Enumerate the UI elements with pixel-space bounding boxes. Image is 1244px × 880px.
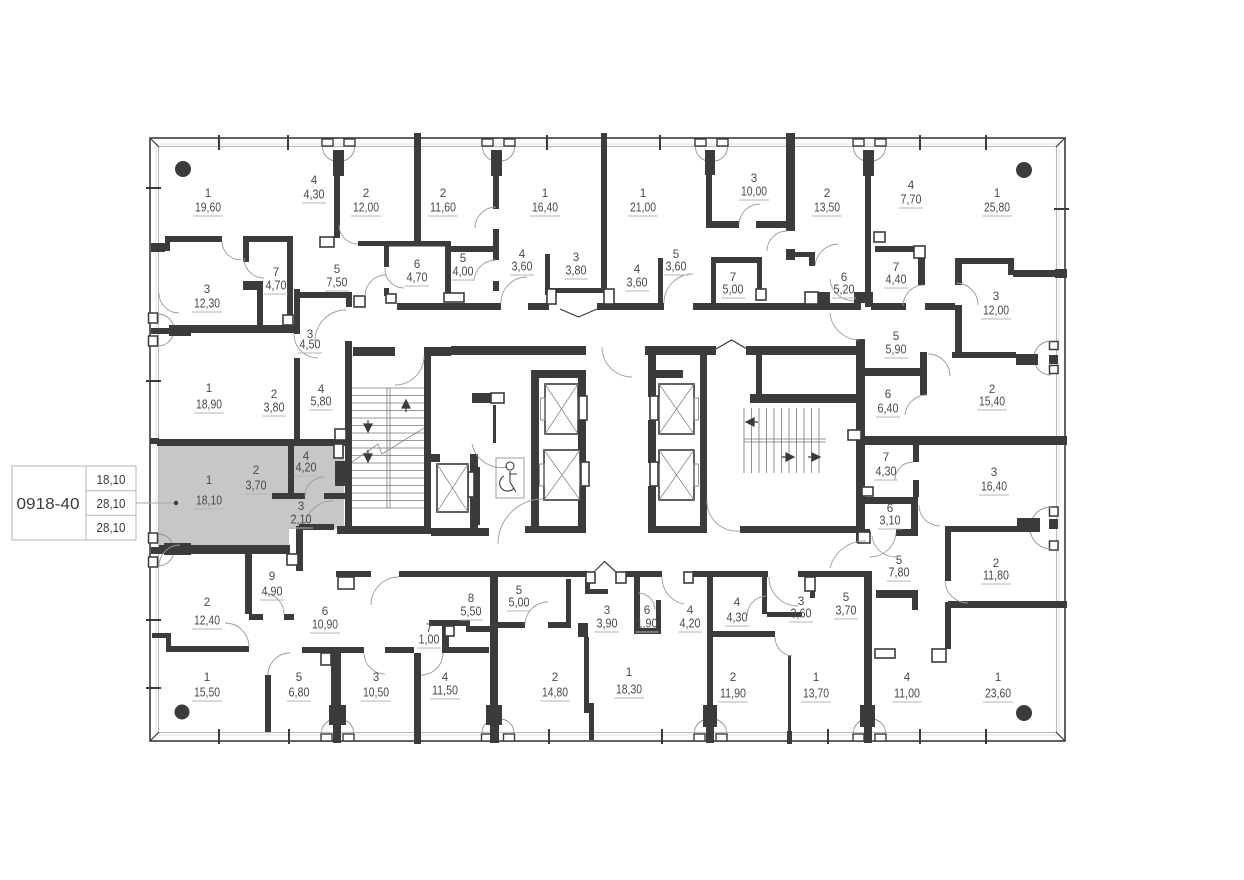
svg-text:18,10: 18,10 [97,473,126,487]
svg-text:18,30: 18,30 [616,683,642,697]
svg-text:3: 3 [993,291,1000,303]
svg-text:0918-40: 0918-40 [17,496,80,513]
svg-text:25,80: 25,80 [984,201,1010,215]
svg-text:5: 5 [296,672,303,684]
svg-text:3,60: 3,60 [666,260,687,274]
svg-text:18,10: 18,10 [196,494,222,508]
svg-text:5,50: 5,50 [461,605,482,619]
svg-text:2: 2 [552,672,559,684]
svg-text:3: 3 [573,252,580,264]
svg-text:4: 4 [908,180,915,192]
svg-text:3,80: 3,80 [566,264,587,278]
svg-text:1: 1 [542,188,549,200]
svg-text:4,20: 4,20 [296,461,317,475]
svg-text:1: 1 [626,667,633,679]
svg-text:5,00: 5,00 [509,596,530,610]
svg-text:15,40: 15,40 [979,395,1005,409]
svg-text:5,20: 5,20 [834,283,855,297]
svg-text:7,80: 7,80 [889,566,910,580]
svg-text:6,80: 6,80 [289,686,310,700]
svg-text:13,50: 13,50 [814,201,840,215]
svg-text:4,40: 4,40 [886,273,907,287]
svg-text:11,60: 11,60 [430,201,456,215]
svg-text:9: 9 [269,571,276,583]
svg-text:11,00: 11,00 [894,687,920,701]
svg-text:11,50: 11,50 [432,684,458,698]
svg-text:21,00: 21,00 [630,201,656,215]
svg-text:1,90: 1,90 [637,617,658,631]
svg-text:18,90: 18,90 [196,398,222,412]
svg-text:16,40: 16,40 [532,201,558,215]
svg-text:12,00: 12,00 [983,304,1009,318]
svg-text:2: 2 [440,188,447,200]
svg-text:4,00: 4,00 [453,265,474,279]
svg-text:4,70: 4,70 [407,271,428,285]
svg-text:7: 7 [883,452,890,464]
svg-text:1: 1 [640,188,647,200]
svg-text:1: 1 [206,475,213,487]
svg-text:4,70: 4,70 [266,279,287,293]
svg-text:3,70: 3,70 [246,479,267,493]
svg-text:28,10: 28,10 [97,521,126,535]
svg-text:8: 8 [468,593,475,605]
svg-text:10,90: 10,90 [312,618,338,632]
svg-text:3: 3 [751,173,758,185]
svg-text:3,70: 3,70 [836,604,857,618]
svg-text:4,50: 4,50 [300,338,321,352]
svg-text:4: 4 [687,605,694,617]
svg-text:11,80: 11,80 [983,569,1009,583]
svg-text:4: 4 [442,672,449,684]
svg-text:5,80: 5,80 [311,395,332,409]
svg-text:2,10: 2,10 [291,513,312,527]
svg-text:4,30: 4,30 [876,465,897,479]
svg-text:6: 6 [414,259,421,271]
svg-text:2: 2 [363,188,370,200]
svg-text:4: 4 [634,264,641,276]
svg-text:5: 5 [460,253,467,265]
svg-text:7,50: 7,50 [327,276,348,290]
svg-text:13,70: 13,70 [803,687,829,701]
svg-text:6: 6 [644,605,651,617]
svg-text:4: 4 [734,597,741,609]
svg-text:6,40: 6,40 [878,402,899,416]
svg-text:1: 1 [206,383,213,395]
svg-text:12,30: 12,30 [194,297,220,311]
svg-text:3,10: 3,10 [880,514,901,528]
svg-text:3,60: 3,60 [512,260,533,274]
svg-text:28,10: 28,10 [97,497,126,511]
svg-text:4,30: 4,30 [304,188,325,202]
svg-text:3,60: 3,60 [791,607,812,621]
svg-text:11,90: 11,90 [720,687,746,701]
svg-text:3: 3 [604,605,611,617]
svg-text:2: 2 [271,389,278,401]
svg-text:1: 1 [994,188,1001,200]
svg-text:16,40: 16,40 [981,480,1007,494]
svg-text:4: 4 [904,672,911,684]
svg-text:3: 3 [991,467,998,479]
svg-text:4,30: 4,30 [727,611,748,625]
svg-text:5,90: 5,90 [886,343,907,357]
svg-text:4,20: 4,20 [680,617,701,631]
svg-text:2: 2 [824,188,831,200]
svg-text:23,60: 23,60 [985,687,1011,701]
svg-text:6: 6 [885,389,892,401]
svg-text:1: 1 [995,672,1002,684]
svg-text:4,90: 4,90 [262,585,283,599]
svg-text:5: 5 [893,331,900,343]
svg-text:19,60: 19,60 [195,201,221,215]
svg-text:3,60: 3,60 [627,276,648,290]
svg-text:15,50: 15,50 [194,686,220,700]
svg-text:3: 3 [373,672,380,684]
svg-text:1: 1 [204,672,211,684]
svg-text:3,80: 3,80 [264,401,285,415]
svg-text:10,00: 10,00 [741,185,767,199]
svg-text:5: 5 [843,592,850,604]
svg-text:3: 3 [298,501,305,513]
svg-text:4: 4 [311,175,318,187]
svg-text:7: 7 [273,267,280,279]
svg-text:1: 1 [205,188,212,200]
svg-text:2: 2 [253,465,260,477]
svg-text:7,70: 7,70 [901,193,922,207]
svg-text:12,00: 12,00 [353,201,379,215]
svg-text:1,00: 1,00 [419,633,440,647]
svg-text:6: 6 [322,606,329,618]
svg-text:10,50: 10,50 [363,686,389,700]
svg-text:5,00: 5,00 [723,283,744,297]
svg-text:3,90: 3,90 [597,617,618,631]
svg-text:1: 1 [813,672,820,684]
svg-text:2: 2 [204,597,211,609]
svg-text:3: 3 [204,284,211,296]
svg-text:12,40: 12,40 [194,614,220,628]
svg-text:14,80: 14,80 [542,686,568,700]
svg-text:2: 2 [730,672,737,684]
svg-text:5: 5 [334,264,341,276]
